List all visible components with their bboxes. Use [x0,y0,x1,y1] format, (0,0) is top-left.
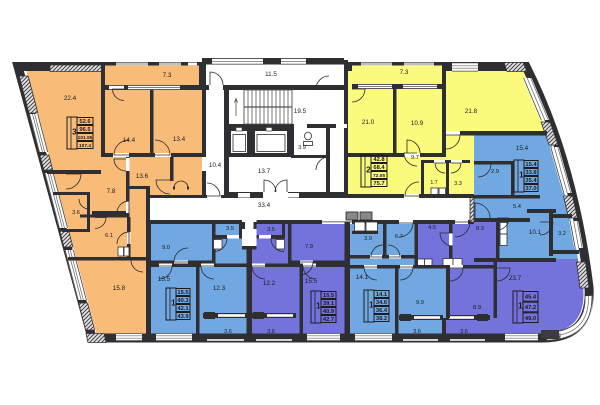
svg-text:15.5: 15.5 [305,278,318,285]
svg-text:13.4: 13.4 [173,136,186,143]
svg-text:22.4: 22.4 [64,95,77,102]
svg-text:3.5: 3.5 [226,226,234,232]
svg-text:7.8: 7.8 [107,188,116,195]
svg-text:10.4: 10.4 [209,162,222,169]
svg-text:7.3: 7.3 [400,69,409,76]
svg-text:3.9: 3.9 [298,145,306,151]
svg-text:52.6: 52.6 [79,119,91,125]
svg-text:9.7: 9.7 [411,155,419,161]
svg-text:33.4: 33.4 [258,202,271,209]
svg-text:7.3: 7.3 [163,72,172,79]
svg-text:40.9: 40.9 [323,309,335,315]
svg-text:3.3: 3.3 [454,181,462,187]
svg-text:3.9: 3.9 [364,236,372,242]
svg-text:43.9: 43.9 [177,314,189,320]
svg-text:5.4: 5.4 [513,204,522,210]
svg-text:15.4: 15.4 [525,162,537,168]
svg-text:15.5: 15.5 [323,293,335,299]
svg-text:45.4: 45.4 [525,295,537,301]
svg-text:15.4: 15.4 [516,145,529,152]
svg-text:47.2: 47.2 [525,305,536,311]
svg-text:42.7: 42.7 [323,317,334,323]
svg-text:15.5: 15.5 [158,276,171,283]
svg-text:42.8: 42.8 [373,157,385,163]
svg-text:12.3: 12.3 [213,285,226,292]
svg-text:34.6: 34.6 [376,300,388,306]
svg-text:3.6: 3.6 [267,329,275,335]
svg-text:3.6: 3.6 [72,210,80,216]
svg-text:68.4: 68.4 [373,165,385,171]
svg-text:10.9: 10.9 [411,120,424,127]
svg-text:3.2: 3.2 [558,231,566,237]
svg-text:3: 3 [72,128,77,137]
svg-text:39.1: 39.1 [323,301,335,307]
svg-text:9.0: 9.0 [162,245,170,251]
svg-text:49.0: 49.0 [525,316,536,322]
svg-text:8.9: 8.9 [473,305,481,311]
svg-text:23.7: 23.7 [509,275,522,282]
svg-text:1: 1 [171,299,176,308]
svg-text:10.1: 10.1 [529,229,542,236]
svg-text:72.05: 72.05 [373,173,385,179]
svg-text:9.9: 9.9 [416,300,424,306]
svg-text:1: 1 [316,302,321,311]
svg-text:101.95: 101.95 [78,135,93,141]
svg-text:13.6: 13.6 [136,173,149,180]
svg-text:1: 1 [519,171,524,180]
svg-text:15.5: 15.5 [177,290,189,296]
svg-text:3.6: 3.6 [413,329,421,335]
svg-text:1: 1 [518,302,523,311]
svg-text:42.1: 42.1 [177,306,189,312]
svg-text:33.8: 33.8 [525,170,537,176]
svg-text:15.8: 15.8 [113,285,126,292]
svg-text:14.1: 14.1 [356,274,369,281]
svg-text:4.5: 4.5 [428,225,436,231]
svg-text:6.7: 6.7 [395,234,403,240]
svg-text:75.7: 75.7 [373,181,384,187]
svg-text:21.0: 21.0 [362,119,375,126]
svg-text:37.0: 37.0 [525,186,536,192]
svg-text:8.3: 8.3 [476,226,484,232]
svg-text:36.4: 36.4 [376,308,388,314]
svg-text:96.5: 96.5 [79,127,91,133]
svg-text:1.7: 1.7 [430,180,437,186]
svg-text:38.2: 38.2 [376,316,387,322]
svg-text:21.8: 21.8 [465,108,478,115]
svg-text:1: 1 [369,301,374,310]
svg-text:2: 2 [366,166,371,175]
svg-text:7.9: 7.9 [305,244,313,250]
svg-text:12.2: 12.2 [263,280,276,287]
svg-text:6.1: 6.1 [105,233,113,239]
svg-text:19.5: 19.5 [294,108,307,115]
svg-text:40.3: 40.3 [177,298,189,304]
svg-text:107.4: 107.4 [79,143,91,149]
svg-text:35.4: 35.4 [525,178,537,184]
svg-text:3.6: 3.6 [224,329,232,335]
svg-text:3.6: 3.6 [460,329,468,335]
svg-text:14.1: 14.1 [376,292,388,298]
svg-text:2.9: 2.9 [491,169,499,175]
svg-text:3.5: 3.5 [267,227,275,233]
svg-text:13.7: 13.7 [258,168,271,175]
svg-text:14.4: 14.4 [123,137,136,144]
svg-text:11.5: 11.5 [265,71,277,78]
